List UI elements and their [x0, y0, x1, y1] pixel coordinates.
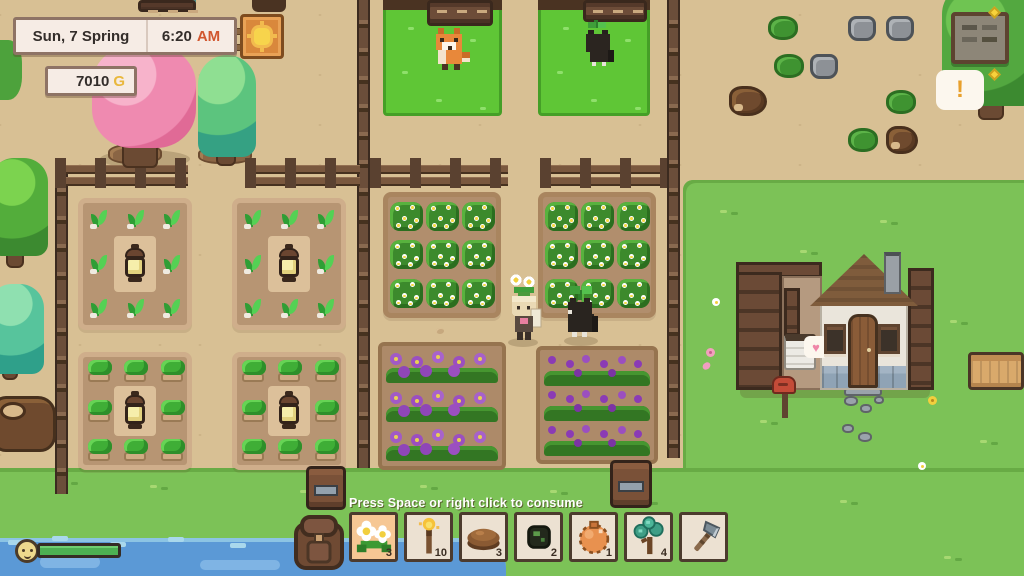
chimney — [884, 252, 901, 294]
crop-sapling — [242, 413, 264, 422]
time-label: 6:20 — [162, 28, 192, 45]
hotbar-slot-7[interactable] — [679, 512, 728, 562]
crop-sprout — [244, 255, 261, 274]
flower-bush-plot — [383, 192, 501, 318]
lantern-pad — [268, 236, 310, 292]
crop-sapling — [315, 452, 337, 461]
lantern-pad — [114, 236, 156, 292]
axe-icon — [684, 517, 724, 557]
crop-sprout — [90, 255, 107, 274]
mailbox-post — [782, 392, 788, 418]
rock[interactable] — [810, 54, 838, 79]
item-count: 3 — [496, 547, 502, 559]
flowering-bush — [581, 202, 614, 231]
item-count: 4 — [661, 547, 667, 559]
sapling-plot — [232, 352, 346, 470]
house-right-wing — [908, 268, 934, 390]
crop-sprout — [163, 210, 180, 229]
fence-horizontal — [370, 158, 508, 188]
crop-sprout — [244, 299, 261, 318]
flowering-bush — [426, 240, 459, 269]
sapling-plot — [78, 352, 192, 470]
crop-sapling — [242, 452, 264, 461]
lantern — [276, 391, 302, 431]
crop-sapling — [278, 452, 300, 461]
fence-vertical — [667, 0, 680, 458]
white-flower — [918, 462, 926, 470]
stone — [874, 396, 884, 404]
grazing-cat[interactable] — [580, 20, 620, 70]
house-door[interactable] — [848, 314, 878, 388]
teal-tree — [0, 284, 44, 374]
crop-sapling — [161, 413, 183, 422]
feeding-trough[interactable] — [583, 0, 647, 22]
house-window — [878, 324, 900, 354]
lantern-pad — [268, 386, 310, 436]
grass-tuft — [840, 500, 847, 503]
stamina-face-icon — [15, 539, 39, 563]
shore-highlight — [230, 543, 246, 548]
stone — [844, 396, 858, 406]
shore-highlight — [168, 537, 184, 542]
crop-sapling — [315, 413, 337, 422]
shore-highlight — [52, 536, 68, 541]
purple-bud-row — [544, 424, 650, 456]
water-highlight — [200, 560, 280, 570]
white-flower — [712, 298, 720, 306]
crop-sprout — [317, 255, 334, 274]
fence-horizontal — [245, 158, 360, 188]
crop-sprout — [163, 255, 180, 274]
purple-bud-row — [544, 389, 650, 421]
exclamation-bubble[interactable]: ! — [936, 70, 984, 110]
flowering-bush — [426, 202, 459, 231]
flowering-bush — [462, 240, 495, 269]
grass-tuft — [950, 320, 957, 323]
purple-bud-plot — [536, 346, 658, 464]
feeding-trough[interactable] — [427, 0, 493, 26]
bush[interactable] — [848, 128, 878, 152]
item-count: 3 — [386, 547, 392, 559]
crop-sprout — [281, 299, 298, 318]
money-amount: 7010 — [76, 73, 109, 90]
crop-sapling — [315, 373, 337, 382]
crop-sapling — [161, 373, 183, 382]
lantern-pad — [114, 386, 156, 436]
hotbar-slot-1[interactable]: 3 — [349, 512, 398, 562]
hotbar-slot-6[interactable]: 4 — [624, 512, 673, 562]
purple-bud-row — [544, 354, 650, 386]
hotbar-slot-2[interactable]: 10 — [404, 512, 453, 562]
money-panel: 7010 G — [45, 66, 137, 96]
grass-tuft — [980, 440, 987, 443]
crop-sapling — [88, 452, 110, 461]
flowering-bush — [617, 202, 650, 231]
yellow-flower — [928, 396, 937, 405]
crop-sapling — [88, 413, 110, 422]
sun-icon — [240, 14, 284, 59]
crop-sprout — [90, 299, 107, 318]
grass-tuft — [944, 556, 951, 559]
heart-icon: ♥ — [812, 340, 820, 355]
stone — [858, 432, 872, 442]
flowering-bush — [545, 240, 578, 269]
fallen-log[interactable] — [0, 396, 56, 452]
crop-sapling — [124, 373, 146, 382]
tree-trunk-top — [252, 0, 286, 12]
crop-sprout — [281, 210, 298, 229]
meridiem-label: AM — [197, 28, 220, 45]
bush[interactable] — [768, 16, 798, 40]
mailbox[interactable] — [772, 376, 796, 394]
flowering-bush — [462, 202, 495, 231]
item-count: 10 — [435, 547, 447, 559]
flowering-bush — [390, 240, 423, 269]
bush[interactable] — [774, 54, 804, 78]
hotbar-slot-3[interactable]: 3 — [459, 512, 508, 562]
purple-flower-plot — [378, 342, 506, 470]
crop-sapling — [124, 452, 146, 461]
crop-sprout — [244, 210, 261, 229]
crop-sprout — [127, 299, 144, 318]
crop-sapling — [242, 373, 264, 382]
green-tree — [0, 158, 48, 256]
house-closet — [784, 288, 800, 336]
crop-sprout — [163, 299, 180, 318]
game-screen: ! ♥ — [0, 0, 1024, 576]
lantern — [276, 244, 302, 284]
crop-sapling — [161, 452, 183, 461]
fox[interactable] — [430, 26, 474, 74]
flowering-bush — [545, 202, 578, 231]
notice-board[interactable] — [951, 12, 1009, 64]
fence-horizontal — [540, 158, 667, 188]
stone — [842, 424, 854, 433]
backpack-button[interactable] — [291, 512, 347, 574]
flowering-bush — [426, 279, 459, 308]
grass-tuft — [800, 250, 807, 253]
cherry-blossom-tree — [92, 46, 196, 148]
fence-vertical — [357, 0, 370, 468]
wood-chunk[interactable] — [729, 86, 767, 116]
house-window — [824, 324, 846, 354]
sprout-plot — [232, 198, 346, 330]
crop-sprout — [317, 299, 334, 318]
hotbar-slot-4[interactable]: 2 — [514, 512, 563, 562]
pink-flower — [706, 348, 715, 357]
crop-sapling — [278, 373, 300, 382]
grass-tuft — [550, 490, 557, 493]
purple-flower-row — [386, 390, 498, 422]
grass-tuft — [420, 485, 427, 488]
flowering-bush — [581, 240, 614, 269]
lantern — [122, 391, 148, 431]
sprout-plot — [78, 198, 192, 330]
stone — [860, 404, 872, 413]
grass-tuft — [760, 420, 767, 423]
consume-tooltip: Press Space or right click to consume — [349, 496, 583, 510]
rock[interactable] — [886, 16, 914, 41]
house-left-wing — [736, 272, 782, 390]
flowering-bush — [617, 279, 650, 308]
wood-chunk[interactable] — [886, 126, 918, 154]
grass-tuft — [150, 485, 157, 488]
purple-flower-row — [386, 351, 498, 383]
flowering-bush — [390, 202, 423, 231]
date-time-panel: Sun, 7 Spring 6:20 AM — [13, 17, 237, 55]
chest[interactable] — [306, 466, 346, 510]
flowering-bush — [462, 279, 495, 308]
crop-sprout — [127, 210, 144, 229]
chest[interactable] — [610, 460, 652, 508]
companion-cat[interactable] — [560, 286, 600, 342]
feeding-trough-partial — [138, 0, 196, 12]
stamina-bar — [37, 543, 121, 558]
grass-tuft — [880, 220, 887, 223]
flowering-bush — [617, 240, 650, 269]
player-holding-flowers — [506, 274, 542, 348]
flowering-bush — [390, 279, 423, 308]
lantern — [122, 244, 148, 284]
bush[interactable] — [886, 90, 916, 114]
exclamation-icon: ! — [956, 76, 964, 104]
rock[interactable] — [848, 16, 876, 41]
item-count: 1 — [606, 547, 612, 559]
purple-flower-row — [386, 429, 498, 461]
crop-sapling — [88, 373, 110, 382]
date-label: Sun, 7 Spring — [16, 20, 148, 52]
mint-tree — [198, 55, 256, 157]
grass-tuft — [720, 210, 727, 213]
fence-vertical — [55, 168, 68, 494]
crop-sprout — [90, 210, 107, 229]
stamina-fill — [40, 546, 118, 555]
pebble — [436, 328, 444, 334]
currency-label: G — [113, 73, 125, 90]
item-count: 2 — [551, 547, 557, 559]
bench[interactable] — [968, 352, 1024, 390]
crop-sprout — [317, 210, 334, 229]
hotbar-slot-5[interactable]: 1 — [569, 512, 618, 562]
